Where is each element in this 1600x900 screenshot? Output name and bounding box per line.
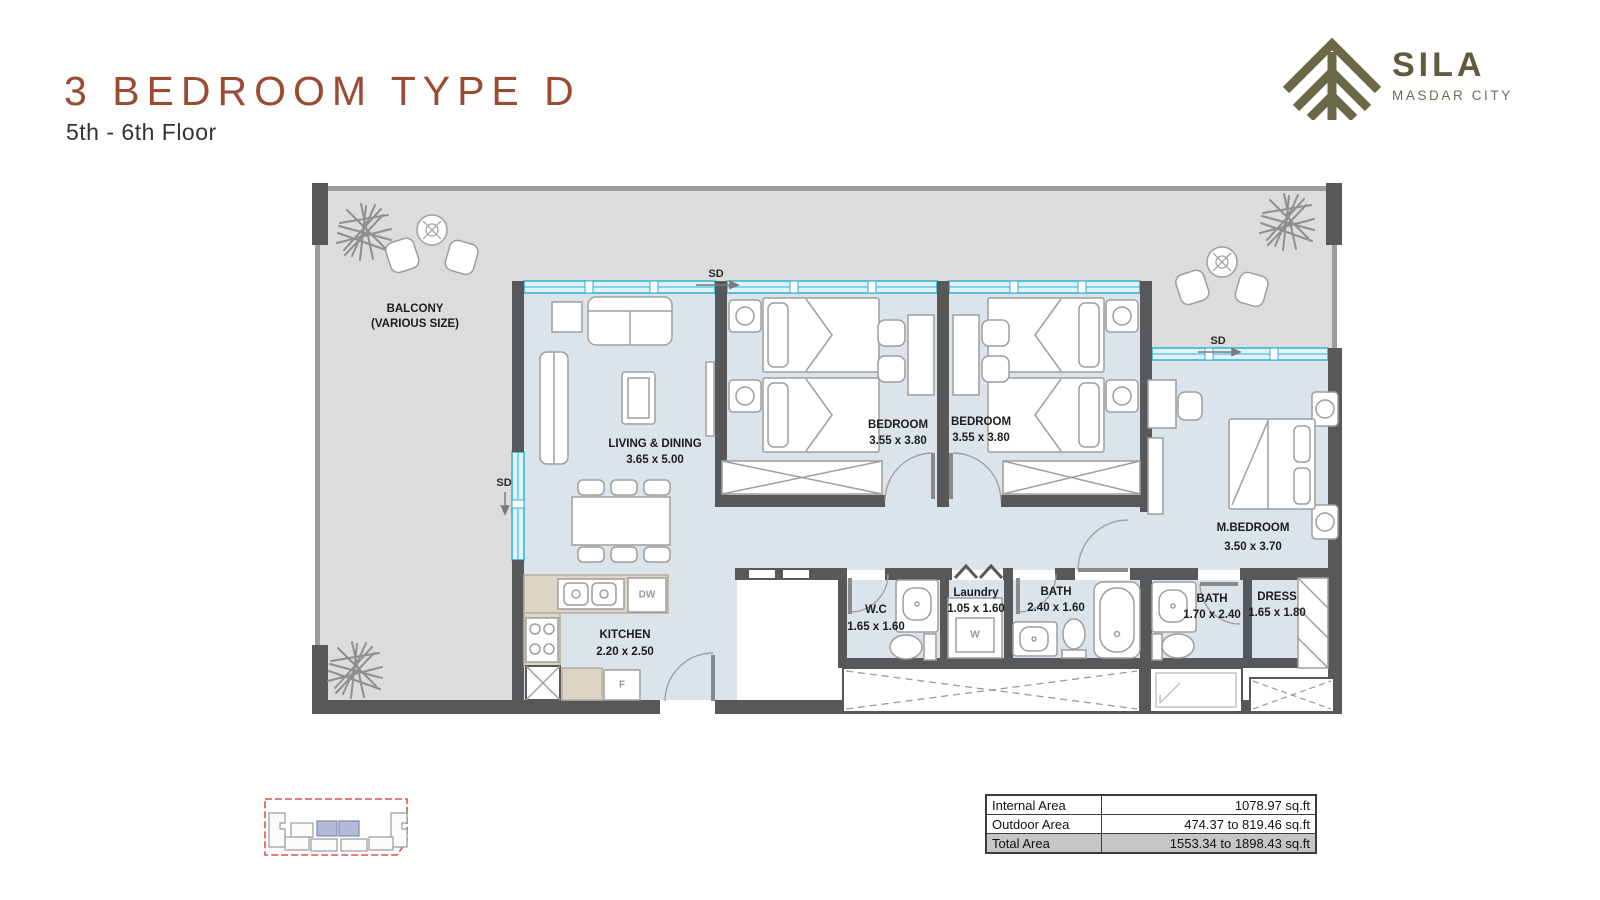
keyplan-building (369, 837, 393, 850)
room-label-bedroom1: BEDROOM (868, 419, 928, 431)
stove-icon (526, 618, 558, 662)
master-bath-fixtures (1152, 582, 1196, 660)
room-label-master-bath: BATH (1196, 593, 1227, 605)
shaft-boxes (843, 668, 1334, 712)
washer-label: W (970, 630, 979, 641)
room-size-wc: 1.65 x 1.60 (847, 621, 905, 633)
sd-label-top: SD (708, 268, 723, 280)
sd-label-left: SD (496, 477, 511, 489)
room-label-kitchen: KITCHEN (599, 629, 650, 641)
room-label-living: LIVING & DINING (608, 438, 701, 450)
room-label-balcony: BALCONY (387, 303, 444, 315)
area-row-label: Outdoor Area (986, 815, 1102, 834)
key-plan (255, 785, 425, 875)
room-size-bedroom1: 3.55 x 3.80 (869, 435, 927, 447)
room-size-living: 3.65 x 5.00 (626, 454, 684, 466)
room-size-balcony: (VARIOUS SIZE) (371, 318, 459, 330)
kitchen-shaft (526, 666, 560, 700)
shower-tray (1150, 668, 1242, 712)
tv-icon (706, 362, 714, 436)
room-label-wc: W.C (865, 604, 887, 616)
room-label-laundry: Laundry (953, 587, 998, 599)
keyplan-unit-highlight (339, 821, 359, 836)
room-size-dress: 1.65 x 1.80 (1248, 607, 1306, 619)
area-row-label: Internal Area (986, 795, 1102, 815)
floor-plan (0, 0, 1600, 900)
area-row-label: Total Area (986, 834, 1102, 854)
table-row: Outdoor Area 474.37 to 819.46 sq.ft (986, 815, 1316, 834)
room-size-laundry: 1.05 x 1.60 (947, 603, 1005, 615)
dining-set-icon (572, 480, 670, 562)
room-size-bath: 2.40 x 1.60 (1027, 602, 1085, 614)
table-row-total: Total Area 1553.34 to 1898.43 sq.ft (986, 834, 1316, 854)
dishwasher-label: DW (639, 590, 656, 601)
keyplan-building (341, 839, 367, 851)
fridge-label: F (619, 680, 625, 691)
side-table-icon (552, 302, 582, 332)
floorplan-page: 3 BEDROOM TYPE D 5th - 6th Floor SILA MA… (0, 0, 1600, 900)
sd-label-master: SD (1210, 335, 1225, 347)
sink-icon (558, 579, 624, 609)
room-label-dress: DRESS (1257, 591, 1297, 603)
chaise-icon (540, 352, 568, 464)
area-table: Internal Area 1078.97 sq.ft Outdoor Area… (985, 794, 1317, 854)
keyplan-building (311, 839, 337, 851)
keyplan-building (291, 823, 313, 837)
area-row-value: 1553.34 to 1898.43 sq.ft (1102, 834, 1317, 854)
room-size-kitchen: 2.20 x 2.50 (596, 646, 654, 658)
room-label-master: M.BEDROOM (1217, 522, 1290, 534)
room-label-bath: BATH (1040, 586, 1071, 598)
table-row: Internal Area 1078.97 sq.ft (986, 795, 1316, 815)
wc-fixtures (890, 580, 938, 660)
area-row-value: 474.37 to 819.46 sq.ft (1102, 815, 1317, 834)
dress-wardrobe (1298, 578, 1328, 668)
room-size-bedroom2: 3.55 x 3.80 (952, 432, 1010, 444)
keyplan-building (285, 837, 309, 850)
keyplan-building (269, 813, 285, 847)
area-row-value: 1078.97 sq.ft (1102, 795, 1317, 815)
room-size-master: 3.50 x 3.70 (1224, 541, 1282, 553)
room-size-master-bath: 1.70 x 2.40 (1183, 609, 1241, 621)
coffee-table-icon (622, 372, 655, 424)
sofa-icon (588, 297, 672, 345)
keyplan-unit-highlight (317, 821, 337, 836)
room-label-bedroom2: BEDROOM (951, 416, 1011, 428)
